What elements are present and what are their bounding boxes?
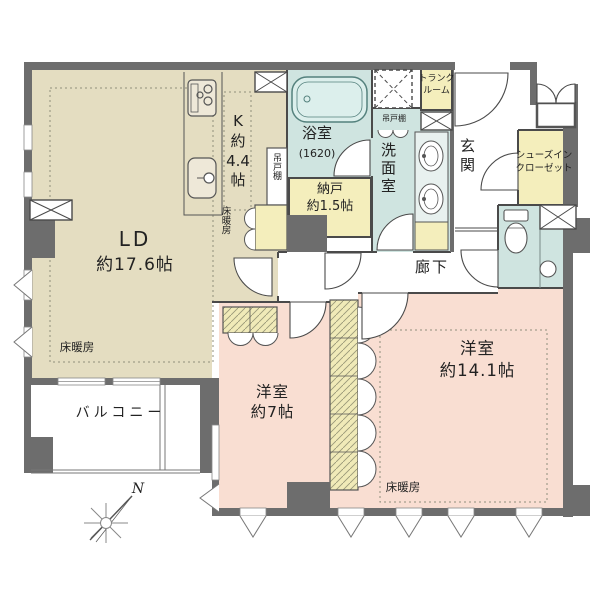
casement-window-swing xyxy=(240,516,266,537)
washroom-cabinet xyxy=(415,222,448,250)
shaft-box-toilet xyxy=(540,205,576,229)
floor-plan: LD 約17.6帖 K 約 4.4 帖 床暖房 吊戸棚 浴室 (1620) 納戸… xyxy=(0,0,600,600)
west7-label: 洋室 約7帖 xyxy=(215,382,330,423)
balcony-label: バルコニー xyxy=(58,404,183,422)
casement-window-swing xyxy=(200,484,219,512)
senmen-label: 洗面室 xyxy=(380,142,395,196)
kitchen-sink-icon xyxy=(188,158,216,198)
nando-label: 納戸 約1.5帖 xyxy=(286,181,374,215)
balcony-corner-pillar xyxy=(24,437,53,473)
toilet-basin-icon xyxy=(540,261,556,277)
bath-name-label: 浴室 xyxy=(288,124,346,144)
entrance-double-door xyxy=(537,84,575,127)
genkan-label: 玄関 xyxy=(459,138,474,176)
kitchen-side-closet xyxy=(255,205,287,250)
entrance-door-swing xyxy=(455,73,508,126)
shaft-box-dashed xyxy=(375,70,412,108)
hanging-cabinet-label: 吊戸棚 xyxy=(271,153,280,180)
compass-icon xyxy=(84,496,132,543)
casement-window-swing xyxy=(338,516,364,537)
shaft-box-trunk xyxy=(421,112,452,130)
ld-floor-heating-label: 床暖房 xyxy=(50,340,104,355)
casement-window-swing xyxy=(448,516,474,537)
balcony-floor xyxy=(31,385,200,473)
shaft-box-west xyxy=(30,200,72,220)
sic-label: シューズイン クローゼット xyxy=(513,150,575,175)
shaft-box-kitchen xyxy=(255,72,287,92)
bathtub-icon xyxy=(292,77,367,122)
casement-window-swing xyxy=(14,270,32,300)
stove-icon xyxy=(188,80,216,116)
bath-size-label: (1620) xyxy=(286,147,348,162)
north-label: N xyxy=(128,480,148,498)
casement-window-swing xyxy=(396,516,422,537)
kitchen-label: K 約 4.4 帖 xyxy=(225,112,251,191)
ld-size-label: 約17.6帖 xyxy=(55,254,215,276)
floor-plan-drawing xyxy=(0,0,600,600)
trunk-room-label: トランク ルーム xyxy=(418,74,455,98)
ld-name-label: LD xyxy=(55,226,215,252)
west14-floor-heating-label: 床暖房 xyxy=(376,480,430,495)
casement-window-swing xyxy=(516,516,542,537)
south-center-pillar xyxy=(287,482,330,516)
north-needle xyxy=(90,496,132,540)
toilet-icon xyxy=(504,210,528,253)
casement-window-swing xyxy=(14,327,32,357)
west-pillar xyxy=(24,217,55,258)
toilet-door-swing xyxy=(461,250,498,287)
kitchen-floor-heating-label: 床暖房 xyxy=(220,206,230,235)
hanging-cabinet-washroom-label: 吊戸棚 xyxy=(378,114,410,125)
rouka-label: 廊下 xyxy=(402,258,462,278)
between-rooms-closet xyxy=(330,300,358,490)
kitchen-pillar xyxy=(287,215,327,252)
corridor-door-swing xyxy=(325,253,361,289)
west14-label: 洋室 約14.1帖 xyxy=(395,338,560,382)
